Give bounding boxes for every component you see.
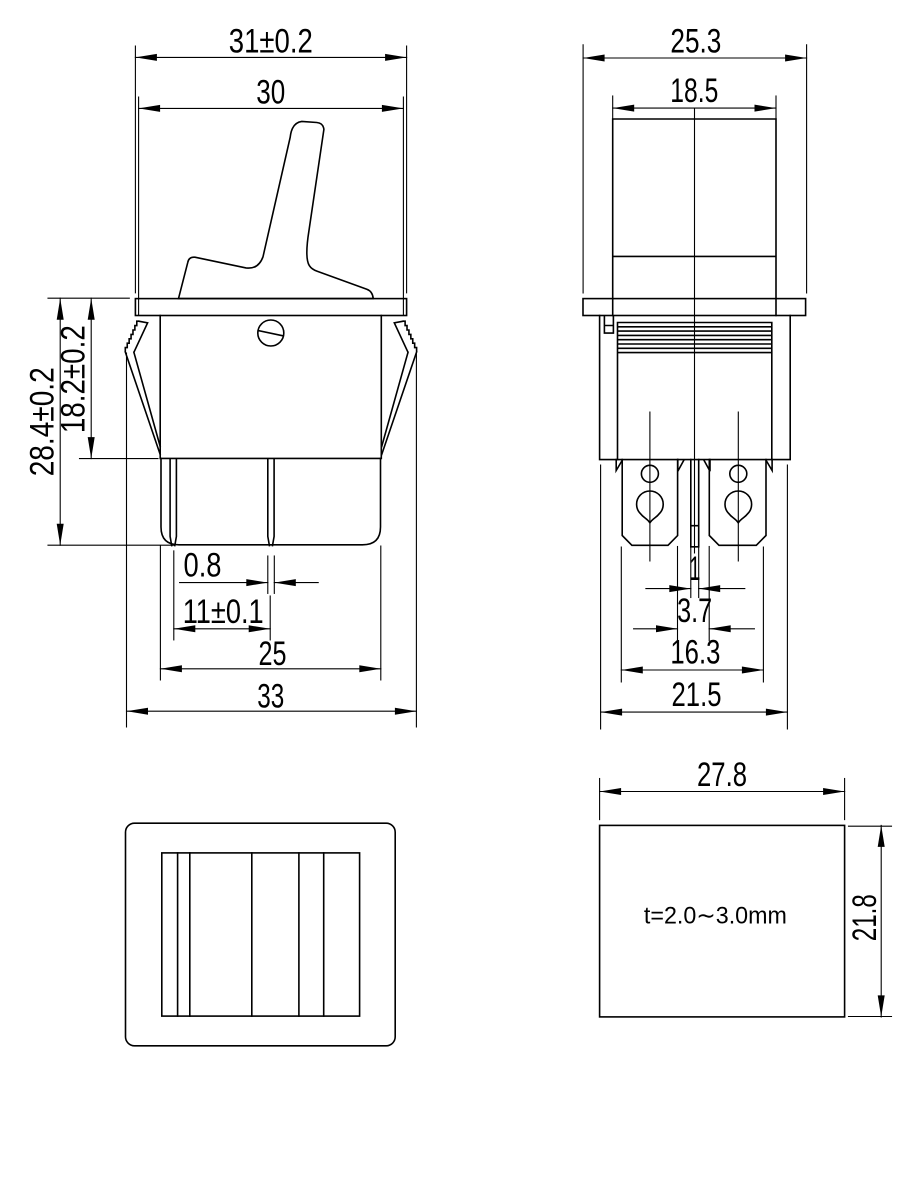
- svg-text:30: 30: [256, 73, 285, 111]
- svg-text:31±0.2: 31±0.2: [229, 22, 313, 60]
- svg-text:21.8: 21.8: [846, 894, 884, 941]
- svg-text:25: 25: [259, 635, 287, 673]
- svg-text:27.8: 27.8: [697, 756, 747, 794]
- svg-text:1: 1: [689, 550, 700, 588]
- svg-text:3.7: 3.7: [677, 592, 712, 630]
- svg-text:18.2±0.2: 18.2±0.2: [55, 325, 93, 433]
- svg-text:33: 33: [257, 678, 284, 716]
- svg-text:t=2.0∼3.0mm: t=2.0∼3.0mm: [644, 903, 787, 930]
- svg-text:0.8: 0.8: [184, 547, 222, 585]
- svg-text:16.3: 16.3: [670, 634, 720, 672]
- svg-text:21.5: 21.5: [672, 676, 722, 714]
- svg-text:18.5: 18.5: [670, 72, 718, 110]
- svg-text:11±0.1: 11±0.1: [183, 593, 264, 631]
- svg-text:25.3: 25.3: [670, 23, 721, 61]
